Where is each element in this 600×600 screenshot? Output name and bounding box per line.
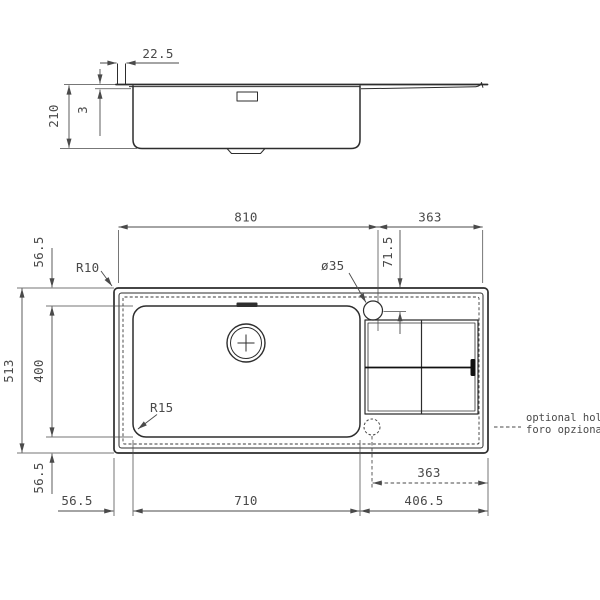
technical-drawing-canvas: 22.5 3 210: [0, 0, 600, 600]
background: [0, 0, 600, 600]
tap-hole-diameter-label: ø35: [321, 258, 344, 273]
dim-710-label: 710: [234, 493, 257, 508]
dim-71-5-label: 71.5: [380, 236, 395, 267]
dim-56-5-bottom-label: 56.5: [61, 493, 92, 508]
dim-363-top-label: 363: [418, 210, 441, 225]
bowl-radius-label: R15: [150, 400, 173, 415]
dim-810-label: 810: [234, 210, 257, 225]
dim-rim-thickness-label: 3: [75, 106, 90, 114]
dim-56-5-bottomleft-label: 56.5: [31, 462, 46, 493]
optional-hole-note-it: foro opzionale: [526, 424, 600, 436]
outer-radius-label: R10: [76, 260, 99, 275]
dim-513-label: 513: [1, 359, 16, 382]
dim-400-label: 400: [31, 359, 46, 382]
optional-hole-note-en: optional hole: [526, 412, 600, 424]
sink-drawing-svg: 22.5 3 210: [0, 0, 600, 600]
rack-handle: [471, 359, 476, 376]
dim-bowl-depth-label: 210: [46, 104, 61, 127]
dim-rim-width-label: 22.5: [142, 46, 173, 61]
overflow-slot: [237, 303, 258, 308]
dim-363-bottom-label: 363: [417, 465, 440, 480]
dim-56-5-topleft-label: 56.5: [31, 236, 46, 267]
dim-406-5-label: 406.5: [404, 493, 443, 508]
